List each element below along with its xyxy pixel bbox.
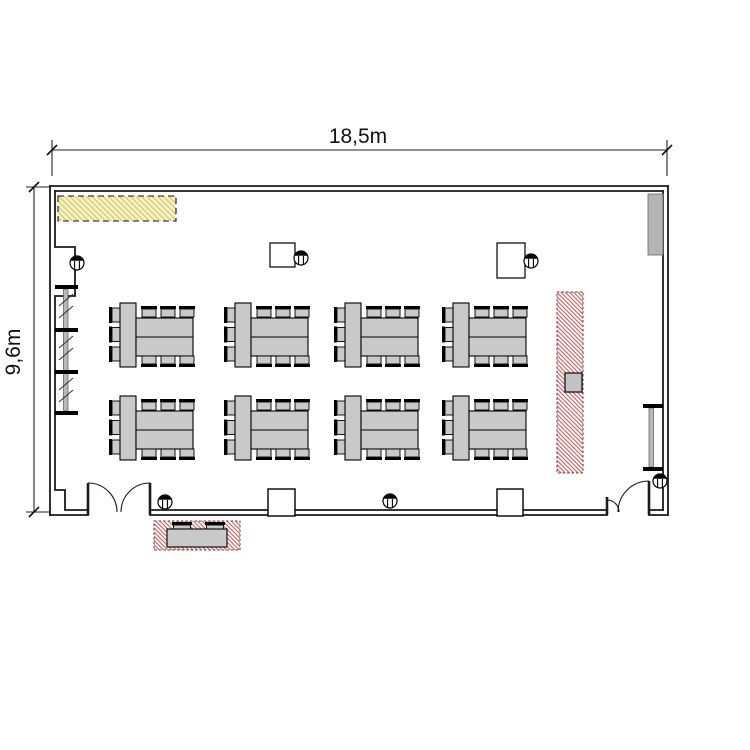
chair <box>334 346 345 362</box>
chair-seat <box>405 402 419 410</box>
chair-seat <box>295 402 309 410</box>
radiator-cap <box>55 328 78 332</box>
chair-seat <box>386 309 400 317</box>
chair-seat <box>386 402 400 410</box>
chair <box>493 449 509 460</box>
chair-backrest <box>474 364 490 367</box>
chair-backrest <box>294 364 310 367</box>
chair-backrest <box>512 399 528 402</box>
chair-backrest <box>294 457 310 460</box>
chair-seat <box>386 356 400 364</box>
height-dimension: 9,6m <box>2 182 50 517</box>
chair-backrest <box>493 457 509 460</box>
chair-backrest <box>385 399 401 402</box>
chair-seat <box>227 401 235 415</box>
chair <box>442 439 453 455</box>
chair <box>160 306 176 317</box>
square-tables <box>270 243 525 278</box>
chair-backrest <box>160 457 176 460</box>
chair <box>160 356 176 367</box>
chair-backrest <box>493 399 509 402</box>
wall-column <box>268 489 295 516</box>
chair-backrest <box>179 399 195 402</box>
chair-backrest <box>141 306 157 309</box>
stool-icon <box>383 494 397 508</box>
chair-seat <box>494 449 508 457</box>
chair <box>294 356 310 367</box>
width-dimension: 18,5m <box>47 125 672 176</box>
chair-backrest <box>385 306 401 309</box>
chair-seat <box>295 309 309 317</box>
chair <box>160 399 176 410</box>
chair-backrest <box>474 306 490 309</box>
chair <box>294 399 310 410</box>
chair-seat <box>227 347 235 361</box>
chair-seat <box>142 449 156 457</box>
chair <box>334 327 345 343</box>
head-table <box>453 396 469 460</box>
chair-backrest <box>385 364 401 367</box>
chair-seat <box>494 356 508 364</box>
radiator-cap <box>643 467 663 471</box>
chair-seat <box>142 309 156 317</box>
chair-seat <box>337 347 345 361</box>
chair-backrest <box>512 457 528 460</box>
chair-backrest <box>256 457 272 460</box>
chair <box>512 306 528 317</box>
chair <box>385 449 401 460</box>
chair-backrest <box>172 522 192 525</box>
chair <box>474 356 490 367</box>
head-table <box>345 303 361 367</box>
chair-seat <box>227 328 235 342</box>
radiator-cap <box>643 404 663 408</box>
head-table <box>235 396 251 460</box>
chair <box>275 306 291 317</box>
chair-backrest <box>294 306 310 309</box>
chair <box>294 306 310 317</box>
chair <box>404 356 420 367</box>
chair <box>109 346 120 362</box>
chair <box>294 449 310 460</box>
chair-seat <box>445 440 453 454</box>
chair-seat <box>161 356 175 364</box>
chair <box>474 306 490 317</box>
chair-backrest <box>366 457 382 460</box>
chair-backrest <box>512 364 528 367</box>
chair <box>334 439 345 455</box>
chair-backrest <box>256 306 272 309</box>
door-swing-arc <box>618 481 649 512</box>
table-groups <box>109 303 528 460</box>
chair-seat <box>445 421 453 435</box>
radiator-cap <box>55 370 78 374</box>
chair-backrest <box>334 346 337 362</box>
chair <box>404 449 420 460</box>
chair-seat <box>475 309 489 317</box>
chair <box>334 420 345 436</box>
chair <box>256 306 272 317</box>
chair-seat <box>405 356 419 364</box>
stool-icon <box>158 495 172 509</box>
small-square-table <box>270 243 295 267</box>
chair-backrest <box>205 522 225 525</box>
chair <box>256 399 272 410</box>
table-group <box>224 303 310 367</box>
chair-backrest <box>366 399 382 402</box>
chair <box>366 306 382 317</box>
chair-seat <box>405 449 419 457</box>
chair-seat <box>112 328 120 342</box>
chair <box>179 356 195 367</box>
chair-seat <box>513 356 527 364</box>
chair <box>493 306 509 317</box>
chair-seat <box>337 421 345 435</box>
table-group <box>224 396 310 460</box>
head-table <box>120 303 136 367</box>
chair <box>256 449 272 460</box>
chair-backrest <box>474 399 490 402</box>
stool-icon <box>70 256 84 270</box>
chair <box>474 399 490 410</box>
yellow-hatched-zone <box>58 196 176 221</box>
chair-seat <box>112 421 120 435</box>
table-group <box>442 396 528 460</box>
chair <box>493 399 509 410</box>
table-group <box>334 303 420 367</box>
chair-backrest <box>385 457 401 460</box>
chair-backrest <box>404 364 420 367</box>
wall-cabinet <box>648 194 663 255</box>
chair <box>442 400 453 416</box>
outdoor-seating-zone <box>154 521 240 550</box>
chair-seat <box>227 308 235 322</box>
chair-seat <box>112 347 120 361</box>
floor-plan-drawing: 18,5m 9,6m <box>0 0 750 750</box>
chair <box>160 449 176 460</box>
chair-backrest <box>160 306 176 309</box>
chair-backrest <box>334 420 337 436</box>
chair-seat <box>180 402 194 410</box>
chair-backrest <box>179 306 195 309</box>
chair-backrest <box>160 399 176 402</box>
chair <box>109 439 120 455</box>
radiator-cap <box>55 285 78 289</box>
chair-backrest <box>334 307 337 323</box>
chair <box>493 356 509 367</box>
chair <box>404 399 420 410</box>
floor-plan-page: 18,5m 9,6m <box>0 0 750 750</box>
chair-seat <box>513 402 527 410</box>
chair <box>224 307 235 323</box>
chair <box>334 400 345 416</box>
chair-backrest <box>493 306 509 309</box>
chair-seat <box>494 309 508 317</box>
table-group <box>109 396 195 460</box>
chair-backrest <box>442 327 445 343</box>
chair-seat <box>513 449 527 457</box>
table-group <box>334 396 420 460</box>
chair-backrest <box>442 439 445 455</box>
chair <box>179 449 195 460</box>
double-door-bottom-left <box>88 483 150 515</box>
chair-seat <box>257 356 271 364</box>
chair-seat <box>367 309 381 317</box>
chair <box>385 356 401 367</box>
chair-backrest <box>404 457 420 460</box>
chair <box>385 306 401 317</box>
chair-seat <box>276 449 290 457</box>
chair-backrest <box>474 457 490 460</box>
chair-seat <box>513 309 527 317</box>
chair-backrest <box>442 346 445 362</box>
chair <box>442 346 453 362</box>
radiator-bar <box>64 289 69 411</box>
chair-backrest <box>256 399 272 402</box>
chair <box>334 307 345 323</box>
chair-backrest <box>442 400 445 416</box>
chair <box>512 356 528 367</box>
width-dimension-label: 18,5m <box>329 125 387 148</box>
chair-backrest <box>275 364 291 367</box>
chair-seat <box>494 402 508 410</box>
radiator-left <box>55 285 78 415</box>
chair-backrest <box>160 364 176 367</box>
chair-seat <box>227 421 235 435</box>
chair <box>224 346 235 362</box>
chair-seat <box>295 449 309 457</box>
chair-seat <box>337 401 345 415</box>
chair-seat <box>337 440 345 454</box>
chair-backrest <box>442 420 445 436</box>
chair-seat <box>276 309 290 317</box>
chair-seat <box>161 402 175 410</box>
chair <box>109 420 120 436</box>
chair-seat <box>367 356 381 364</box>
chair-backrest <box>404 306 420 309</box>
chair-seat <box>295 356 309 364</box>
radiator-cap <box>55 411 78 415</box>
chair-seat <box>367 449 381 457</box>
chair <box>442 307 453 323</box>
chair-seat <box>445 328 453 342</box>
chair-seat <box>112 308 120 322</box>
equipment-box <box>565 373 582 392</box>
chair-backrest <box>141 457 157 460</box>
chair-seat <box>180 356 194 364</box>
chair-backrest <box>493 364 509 367</box>
chair-backrest <box>366 306 382 309</box>
radiator-right <box>643 404 663 471</box>
chair-backrest <box>442 307 445 323</box>
chair-seat <box>337 328 345 342</box>
red-hatched-zone-right <box>557 292 583 473</box>
chair <box>275 356 291 367</box>
chair-seat <box>337 308 345 322</box>
chair-backrest <box>275 306 291 309</box>
chair-seat <box>142 356 156 364</box>
chair-seat <box>445 308 453 322</box>
chair-seat <box>445 347 453 361</box>
chair-seat <box>142 402 156 410</box>
chair-seat <box>112 401 120 415</box>
chair-seat <box>475 402 489 410</box>
chair <box>404 306 420 317</box>
chair <box>141 306 157 317</box>
chair-backrest <box>256 364 272 367</box>
chair <box>256 356 272 367</box>
chair-backrest <box>275 399 291 402</box>
chair <box>512 449 528 460</box>
chair-backrest <box>512 306 528 309</box>
chair <box>385 399 401 410</box>
table-group <box>442 303 528 367</box>
chair-seat <box>257 309 271 317</box>
door-swing-arc <box>121 483 150 512</box>
chair-seat <box>161 309 175 317</box>
chair-backrest <box>179 364 195 367</box>
chair <box>141 356 157 367</box>
chair <box>366 449 382 460</box>
chair <box>141 449 157 460</box>
chair <box>224 439 235 455</box>
head-table <box>345 396 361 460</box>
chair-seat <box>180 309 194 317</box>
chair <box>512 399 528 410</box>
chair-backrest <box>141 364 157 367</box>
door-bottom-right <box>607 481 649 515</box>
chair <box>224 420 235 436</box>
chair <box>109 307 120 323</box>
chair-seat <box>180 449 194 457</box>
chair-seat <box>276 356 290 364</box>
chair <box>275 449 291 460</box>
chair-backrest <box>404 399 420 402</box>
chair <box>366 356 382 367</box>
chair-backrest <box>334 327 337 343</box>
head-table <box>453 303 469 367</box>
chair-backrest <box>275 457 291 460</box>
door-swing-arc <box>607 500 619 512</box>
stool-icon <box>524 254 538 268</box>
stool-icon <box>294 251 308 265</box>
chair-seat <box>475 356 489 364</box>
chair-seat <box>475 449 489 457</box>
head-table <box>235 303 251 367</box>
chair <box>474 449 490 460</box>
stool-icon <box>653 474 667 488</box>
chair <box>275 399 291 410</box>
chair-backrest <box>334 400 337 416</box>
chair <box>179 399 195 410</box>
chair-seat <box>367 402 381 410</box>
chair-seat <box>161 449 175 457</box>
chair-seat <box>276 402 290 410</box>
chair-seat <box>227 440 235 454</box>
chair-seat <box>405 309 419 317</box>
chair-backrest <box>141 399 157 402</box>
table-group <box>109 303 195 367</box>
chair-seat <box>257 402 271 410</box>
chair <box>224 400 235 416</box>
chair-seat <box>445 401 453 415</box>
chair <box>109 400 120 416</box>
chair-seat <box>386 449 400 457</box>
chair <box>179 306 195 317</box>
wall-left-inner-with-niche <box>55 191 88 510</box>
outdoor-table <box>167 529 227 547</box>
chair-backrest <box>334 439 337 455</box>
chair-backrest <box>366 364 382 367</box>
chair-seat <box>257 449 271 457</box>
small-square-table <box>497 243 525 278</box>
chair <box>366 399 382 410</box>
chair <box>224 327 235 343</box>
chair-seat <box>112 440 120 454</box>
wall-column <box>497 489 523 516</box>
chair <box>442 327 453 343</box>
chair <box>141 399 157 410</box>
height-dimension-label: 9,6m <box>2 329 25 376</box>
door-swing-arc <box>88 483 117 512</box>
chair <box>109 327 120 343</box>
head-table <box>120 396 136 460</box>
chair-backrest <box>179 457 195 460</box>
radiator-bar <box>649 408 654 467</box>
chair-backrest <box>294 399 310 402</box>
chair <box>442 420 453 436</box>
